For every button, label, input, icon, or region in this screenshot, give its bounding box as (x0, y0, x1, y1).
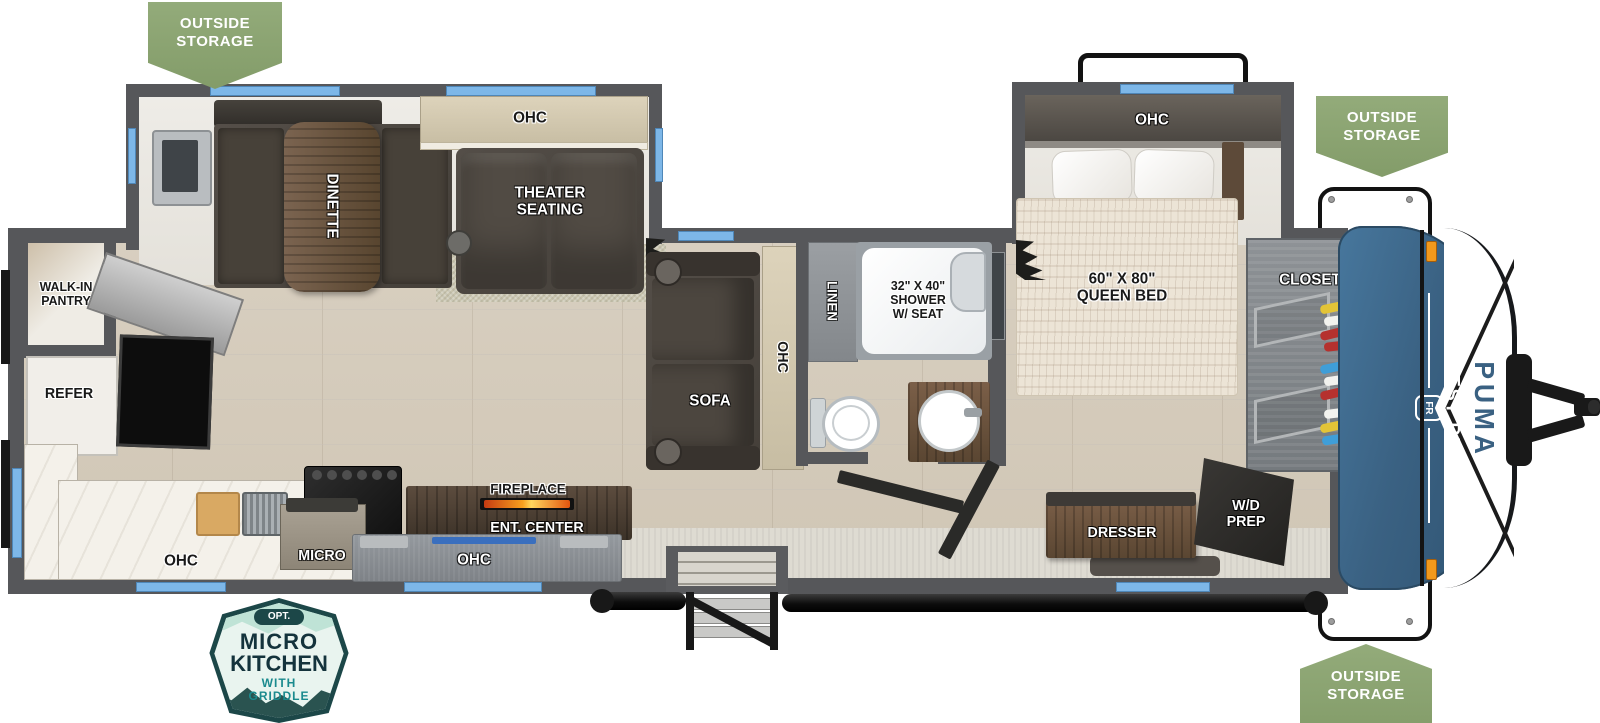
window (210, 86, 340, 96)
option-line2: KITCHEN (213, 651, 345, 677)
hitch-ball (1588, 400, 1600, 414)
window (1120, 84, 1234, 94)
toilet-seat (832, 405, 870, 441)
label-ohc-bedroom: OHC (1135, 111, 1169, 128)
sofa-cushion (652, 278, 754, 360)
option-tag: OPT. (254, 609, 304, 625)
entry-landing (678, 552, 776, 586)
sofa-pillow (654, 438, 682, 466)
dinette-bench-left (218, 128, 284, 284)
pillow (1051, 149, 1133, 206)
awning-rail-cap (590, 589, 614, 613)
label-ohc-dinette-slide: OHC (513, 109, 547, 126)
label-ohc-galley: OHC (457, 551, 491, 568)
screw-dot (1406, 196, 1413, 203)
galley-ohc-cap (360, 536, 408, 548)
bath-mirror (991, 252, 1005, 340)
tv (116, 334, 214, 449)
label-dresser: DRESSER (1088, 525, 1157, 541)
option-sub2: GRIDDLE (213, 689, 345, 703)
label-linen: LINEN (824, 281, 839, 321)
badge-outside-storage-front-bottom: OUTSIDE STORAGE (1300, 644, 1432, 723)
galley-ohc-window (432, 537, 536, 544)
window (404, 582, 542, 592)
microwave-lid (286, 498, 358, 512)
stove-knob (312, 470, 322, 480)
label-refer: REFER (45, 386, 93, 402)
option-sub1: WITH (213, 676, 345, 690)
theater-console (446, 230, 472, 256)
window (12, 468, 22, 558)
hitch-arm (1526, 414, 1585, 442)
vanity-sink (918, 390, 980, 452)
label-sofa: SOFA (689, 392, 730, 409)
brand-maker: FOREST RIVER (1441, 331, 1462, 487)
bath-wall-bottom-left (796, 452, 868, 464)
window (446, 86, 596, 96)
awning-rail (782, 594, 1316, 612)
brand-model: PUMA (1469, 361, 1499, 458)
screw-dot (1328, 196, 1335, 203)
option-badge-inner: OPT. MICRO KITCHEN WITH GRIDDLE (213, 603, 345, 718)
rear-trim (1, 270, 10, 364)
brand-line (1428, 293, 1430, 388)
window (136, 582, 226, 592)
awning-rail-cap (1304, 591, 1328, 615)
bed-slide-wall-right (1281, 82, 1294, 244)
floorplan: DINETTE OHC THEATER SEATING WALK-IN PANT… (0, 0, 1600, 723)
screw-dot (1328, 618, 1335, 625)
label-wd-prep: W/D PREP (1227, 498, 1266, 530)
bath-wall-left (796, 240, 808, 466)
dinette-bench-right (382, 128, 448, 284)
fireplace-flame (484, 500, 570, 508)
dresser-top (1046, 492, 1196, 506)
label-dinette: DINETTE (323, 173, 340, 238)
slide-window-glass (162, 140, 198, 192)
badge-outside-storage-rear: OUTSIDE STORAGE (148, 2, 282, 89)
refrigerator (26, 356, 118, 456)
brand-line (1428, 428, 1430, 523)
vanity-faucet (964, 408, 982, 417)
label-micro: MICRO (298, 548, 346, 564)
window (1116, 582, 1210, 592)
theater-seat-left (461, 153, 547, 289)
badge-outside-storage-front-top: OUTSIDE STORAGE (1316, 96, 1448, 177)
clearance-light (1426, 559, 1437, 580)
label-ohc-sofa: OHC (774, 341, 790, 373)
window (655, 128, 663, 182)
label-queen-bed: 60" X 80" QUEEN BED (1077, 271, 1167, 306)
label-closet: CLOSET (1279, 271, 1341, 288)
clearance-light (1426, 241, 1437, 262)
window (678, 231, 734, 241)
window (128, 128, 136, 184)
hitch-coupler (1506, 354, 1532, 466)
label-theater-seating: THEATER SEATING (515, 185, 586, 220)
label-ohc-kitchen: OHC (164, 552, 198, 569)
shower-seat (950, 252, 986, 312)
sofa-pillow (654, 258, 682, 286)
cutting-board (196, 492, 240, 536)
dresser-pad (1090, 556, 1220, 576)
rear-trim (1, 440, 10, 548)
pillow (1133, 149, 1215, 206)
screw-dot (1406, 618, 1413, 625)
option-badge: OPT. MICRO KITCHEN WITH GRIDDLE (208, 598, 350, 723)
galley-ohc-cap (560, 536, 608, 548)
front-storage-outline-edge (1420, 230, 1424, 586)
theater-seat-right (551, 153, 637, 289)
label-fireplace: FIREPLACE (490, 481, 565, 496)
label-shower: 32" X 40" SHOWER W/ SEAT (890, 279, 946, 321)
label-walk-in-pantry: WALK-IN PANTRY (40, 280, 93, 308)
